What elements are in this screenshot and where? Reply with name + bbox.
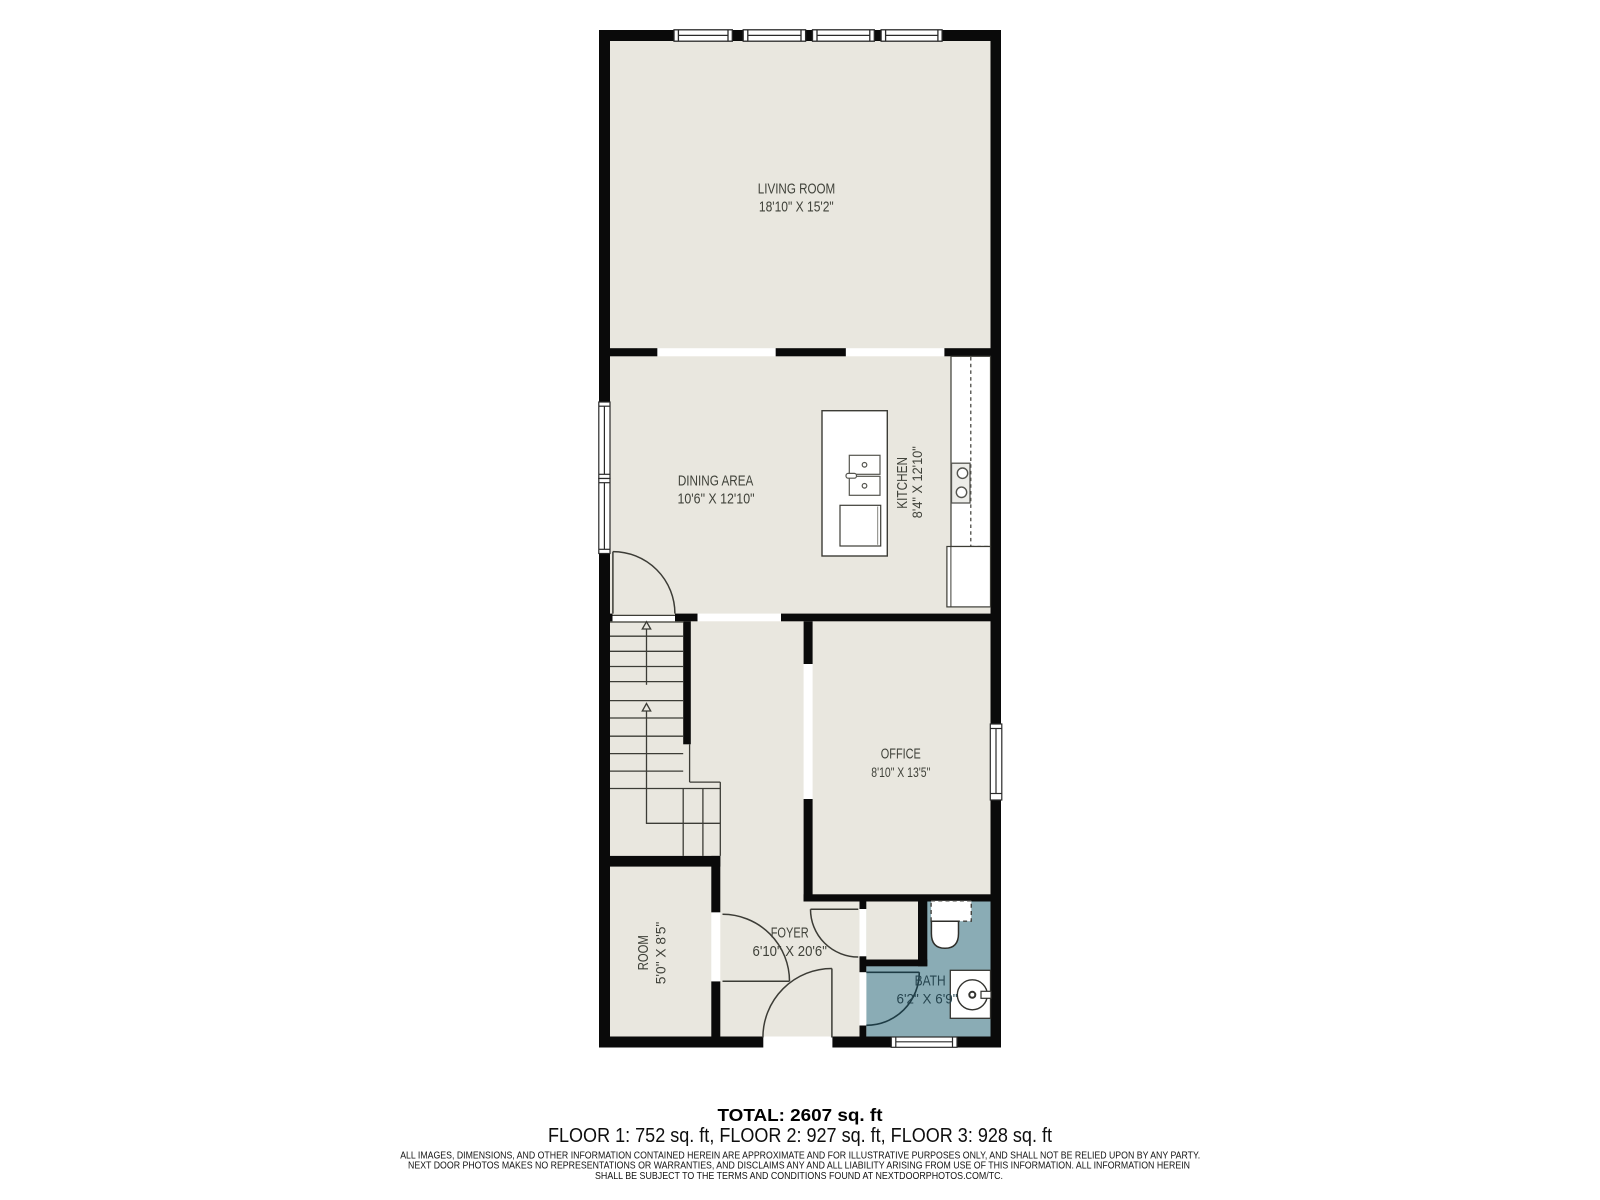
svg-text:8'10" X 13'5": 8'10" X 13'5" bbox=[871, 765, 930, 780]
svg-text:LIVING ROOM: LIVING ROOM bbox=[758, 182, 836, 198]
svg-text:BATH: BATH bbox=[915, 974, 946, 990]
svg-text:ROOM: ROOM bbox=[636, 935, 652, 970]
svg-text:TOTAL: 2607 sq. ft: TOTAL: 2607 sq. ft bbox=[718, 1105, 883, 1125]
svg-text:10'6" X 12'10": 10'6" X 12'10" bbox=[678, 491, 755, 507]
svg-text:OFFICE: OFFICE bbox=[881, 747, 921, 763]
svg-text:FOYER: FOYER bbox=[771, 926, 809, 942]
svg-text:8'4" X 12'10": 8'4" X 12'10" bbox=[910, 446, 925, 518]
svg-text:6'2" X 6'9": 6'2" X 6'9" bbox=[897, 991, 958, 1006]
svg-text:SHALL BE SUBJECT TO THE TERMS: SHALL BE SUBJECT TO THE TERMS AND CONDIT… bbox=[595, 1171, 1003, 1182]
svg-text:KITCHEN: KITCHEN bbox=[895, 457, 911, 509]
svg-text:18'10" X 15'2": 18'10" X 15'2" bbox=[759, 200, 834, 216]
svg-text:FLOOR 1: 752 sq. ft, FLOOR 2:: FLOOR 1: 752 sq. ft, FLOOR 2: 927 sq. ft… bbox=[548, 1125, 1052, 1147]
svg-text:5'0" X 8'5": 5'0" X 8'5" bbox=[654, 922, 669, 985]
svg-text:DINING AREA: DINING AREA bbox=[678, 474, 754, 490]
svg-text:6'10" X 20'6": 6'10" X 20'6" bbox=[753, 944, 827, 960]
